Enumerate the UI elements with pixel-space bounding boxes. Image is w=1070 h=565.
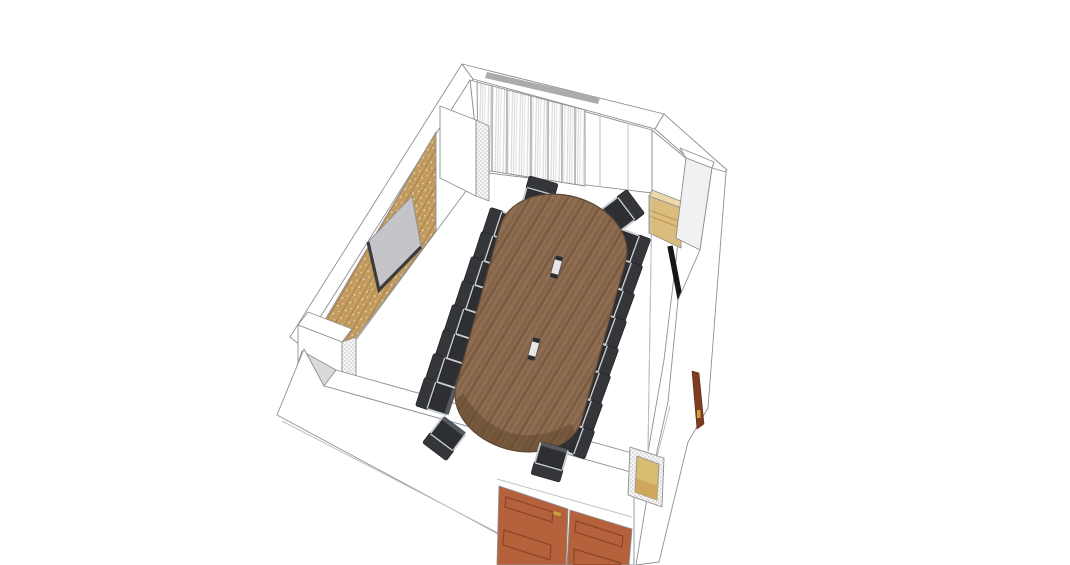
render-viewport: [0, 0, 1070, 565]
back-wall: [462, 72, 652, 193]
side-door-handle: [697, 410, 701, 418]
pilaster-column-a-side: [476, 120, 489, 201]
room-3d-render: [0, 0, 1070, 565]
